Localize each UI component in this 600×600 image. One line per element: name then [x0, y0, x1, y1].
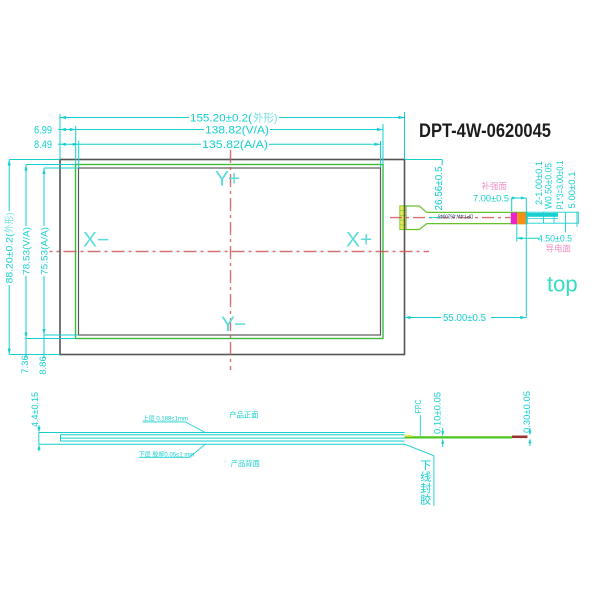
- svg-text:5.00±0.1: 5.00±0.1: [567, 172, 577, 209]
- svg-text:X: X: [346, 229, 360, 252]
- svg-text:Y: Y: [215, 168, 229, 191]
- svg-text:DPT-4W-0620045: DPT-4W-0620045: [438, 213, 473, 219]
- svg-text:+: +: [228, 168, 240, 191]
- svg-text:FPC: FPC: [414, 399, 423, 413]
- svg-text:外形): 外形): [4, 213, 16, 234]
- svg-text:7.00±0.5: 7.00±0.5: [473, 194, 509, 205]
- svg-text:6.99: 6.99: [34, 124, 52, 136]
- svg-text:7.36: 7.36: [20, 355, 31, 374]
- svg-text:X: X: [83, 229, 97, 252]
- svg-text:78.53(V/A): 78.53(V/A): [22, 227, 33, 275]
- svg-text:0.10±0.05: 0.10±0.05: [433, 392, 443, 434]
- svg-text:75.53(A/A): 75.53(A/A): [40, 227, 51, 275]
- svg-text:产品正面: 产品正面: [229, 410, 258, 419]
- svg-text:上层 0.188≤1mm: 上层 0.188≤1mm: [143, 415, 188, 423]
- svg-text:55.00±0.5: 55.00±0.5: [443, 313, 486, 324]
- svg-text:导电面: 导电面: [546, 244, 572, 254]
- svg-text:top: top: [547, 272, 578, 297]
- svg-text:2-1.00±0.1: 2-1.00±0.1: [534, 161, 544, 205]
- svg-text:胶: 胶: [420, 493, 431, 507]
- svg-text:0.30±0.05: 0.30±0.05: [522, 391, 532, 433]
- svg-text:DPT-4W-0620045: DPT-4W-0620045: [419, 120, 551, 142]
- svg-text:封: 封: [420, 481, 431, 495]
- svg-text:P1*3=3.00±0.1: P1*3=3.00±0.1: [555, 161, 565, 210]
- svg-text:−: −: [97, 229, 109, 252]
- svg-text:+: +: [360, 229, 372, 252]
- svg-text:8.49: 8.49: [34, 139, 52, 151]
- svg-text:88.20±0.2(: 88.20±0.2(: [5, 233, 16, 284]
- svg-text:26.56±0.5: 26.56±0.5: [434, 166, 445, 210]
- svg-text:8.86: 8.86: [38, 356, 49, 375]
- svg-text:4.4±0.15: 4.4±0.15: [30, 392, 40, 427]
- svg-text:外形): 外形): [253, 111, 278, 124]
- svg-text:−: −: [234, 313, 246, 336]
- svg-text:下: 下: [420, 460, 431, 472]
- svg-text:155.20±0.2(: 155.20±0.2(: [190, 112, 252, 124]
- svg-text:补强面: 补强面: [482, 181, 508, 191]
- svg-text:138.82(V/A): 138.82(V/A): [205, 124, 269, 136]
- svg-text:135.82(A/A): 135.82(A/A): [202, 139, 268, 151]
- svg-text:线: 线: [420, 470, 431, 484]
- svg-text:W0.50±0.05: W0.50±0.05: [544, 163, 554, 209]
- svg-text:Y: Y: [221, 313, 235, 336]
- svg-text:产品背面: 产品背面: [231, 459, 260, 468]
